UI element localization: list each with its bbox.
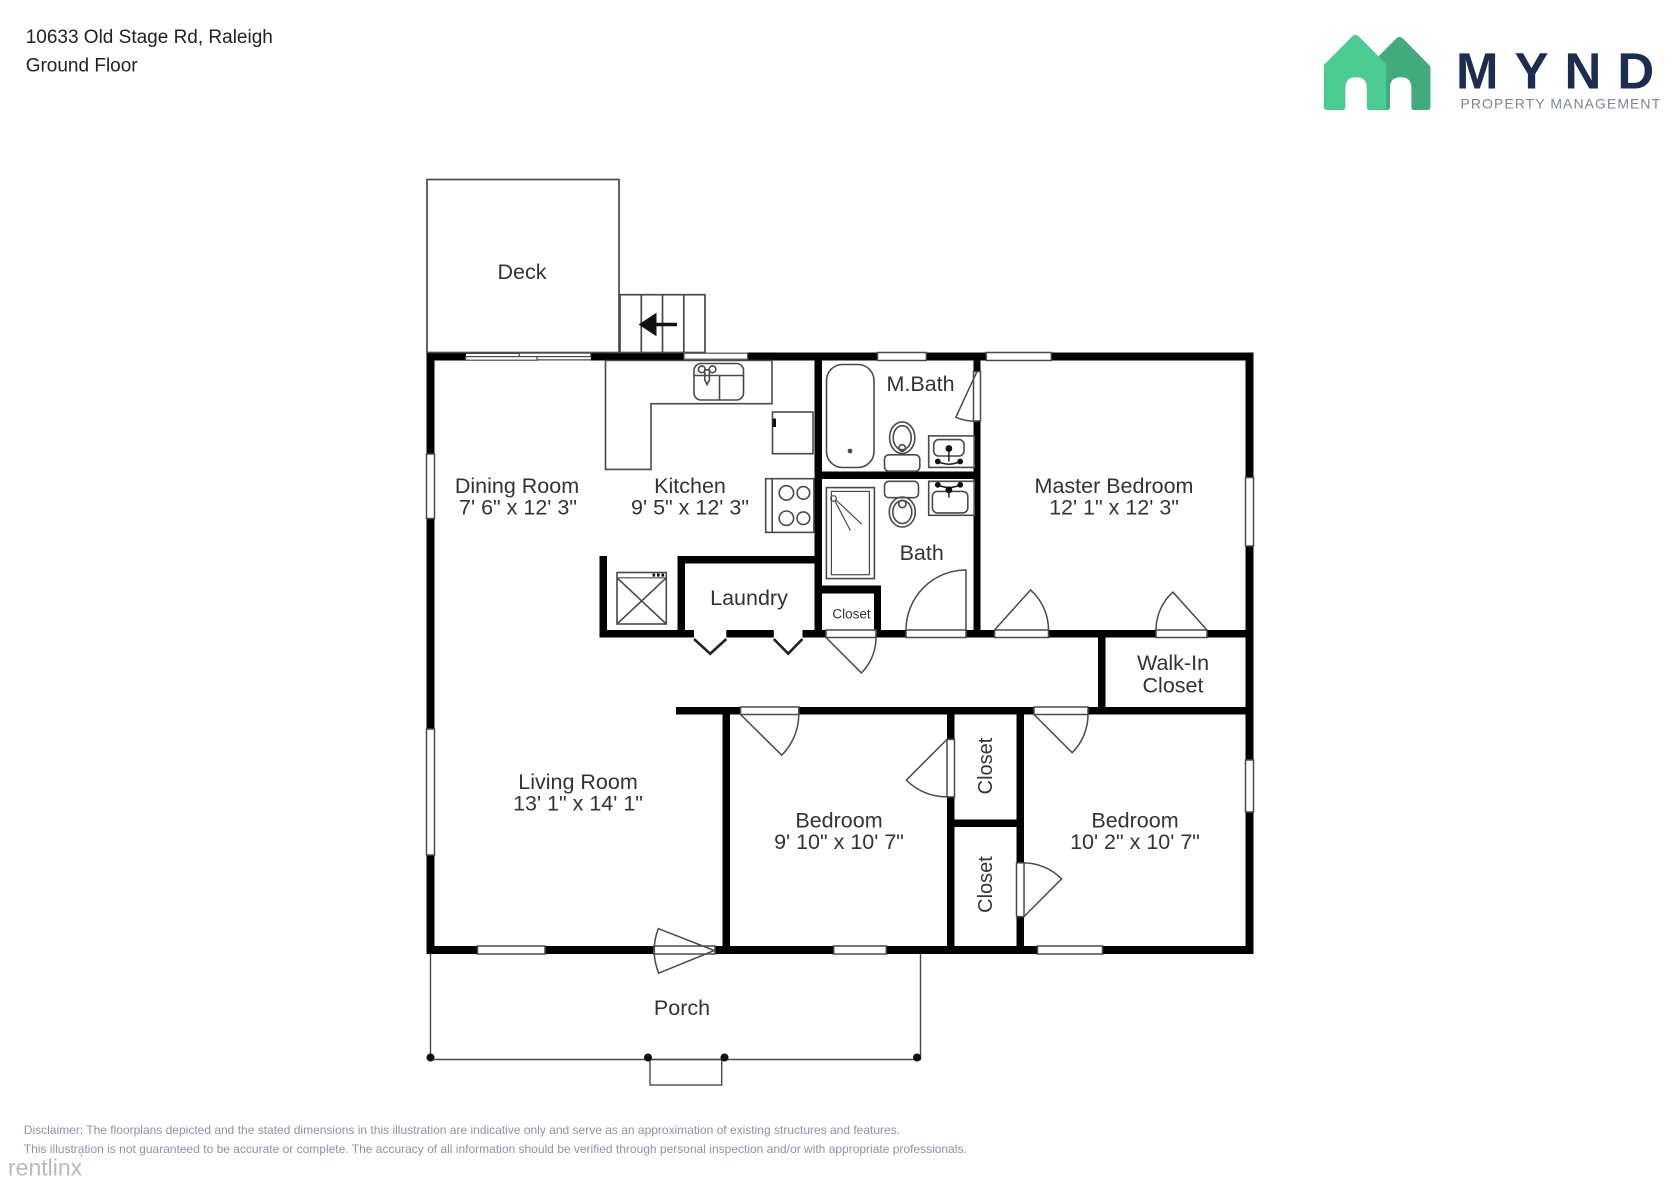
- svg-text:Bedroom: Bedroom: [1091, 809, 1178, 833]
- svg-text:MYND: MYND: [1456, 43, 1670, 100]
- svg-text:Kitchen: Kitchen: [654, 474, 726, 498]
- svg-text:Bath: Bath: [900, 541, 944, 565]
- svg-text:Ground Floor: Ground Floor: [26, 56, 139, 77]
- svg-text:M.Bath: M.Bath: [886, 372, 954, 396]
- svg-text:Walk-In: Walk-In: [1137, 651, 1209, 675]
- svg-text:Living Room: Living Room: [518, 770, 638, 794]
- svg-text:rentlinx: rentlinx: [8, 1155, 83, 1181]
- svg-text:Closet: Closet: [832, 607, 871, 622]
- svg-text:Closet: Closet: [975, 856, 997, 913]
- svg-text:PROPERTY MANAGEMENT: PROPERTY MANAGEMENT: [1461, 96, 1662, 112]
- svg-text:Bedroom: Bedroom: [795, 809, 882, 833]
- svg-text:Dining Room: Dining Room: [455, 474, 579, 498]
- svg-text:Master Bedroom: Master Bedroom: [1035, 474, 1194, 498]
- svg-text:12' 1" x 12' 3": 12' 1" x 12' 3": [1049, 496, 1179, 520]
- svg-text:9' 10" x 10' 7": 9' 10" x 10' 7": [774, 830, 904, 854]
- svg-text:Closet: Closet: [975, 737, 997, 794]
- svg-text:9' 5" x 12' 3": 9' 5" x 12' 3": [631, 496, 749, 520]
- svg-text:Closet: Closet: [1143, 674, 1204, 698]
- svg-text:This illustration is not guara: This illustration is not guaranteed to b…: [24, 1142, 967, 1156]
- svg-text:Porch: Porch: [654, 996, 710, 1020]
- svg-text:10633 Old Stage Rd, Raleigh: 10633 Old Stage Rd, Raleigh: [26, 27, 273, 48]
- svg-text:': ': [80, 1151, 83, 1168]
- svg-text:7' 6" x 12' 3": 7' 6" x 12' 3": [459, 496, 577, 520]
- svg-text:Disclaimer: The floorplans dep: Disclaimer: The floorplans depicted and …: [24, 1123, 900, 1137]
- svg-text:13' 1" x 14' 1": 13' 1" x 14' 1": [513, 792, 643, 816]
- svg-text:Deck: Deck: [498, 260, 547, 284]
- svg-text:10' 2" x 10' 7": 10' 2" x 10' 7": [1070, 830, 1200, 854]
- svg-text:Laundry: Laundry: [710, 586, 788, 610]
